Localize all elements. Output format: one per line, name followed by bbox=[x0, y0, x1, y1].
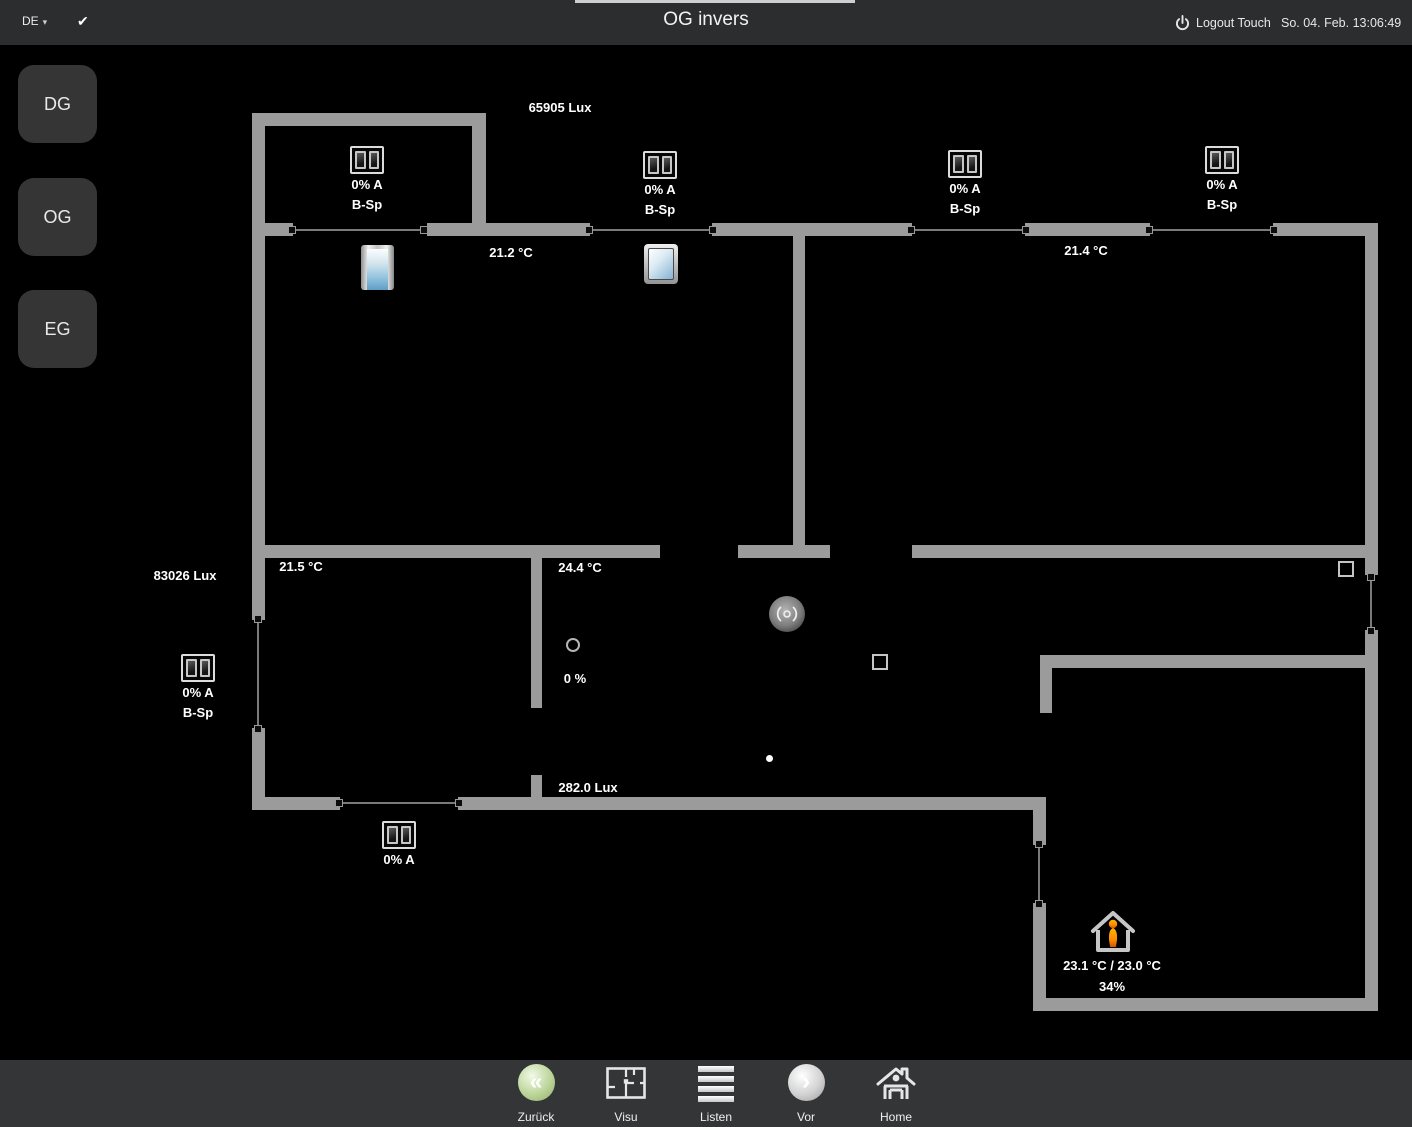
blind-control: 0% A B-Sp bbox=[1180, 146, 1264, 214]
toolbar-home-button[interactable]: Home bbox=[854, 1064, 938, 1124]
window-pane bbox=[387, 826, 398, 844]
valve-icon[interactable] bbox=[566, 638, 580, 652]
blind-window-icon[interactable] bbox=[382, 821, 416, 849]
lux-value-left: 83026 Lux bbox=[154, 568, 217, 583]
blind-mode-label: B-Sp bbox=[156, 704, 240, 722]
window-pane bbox=[355, 151, 366, 169]
wall bbox=[1040, 668, 1052, 713]
wall bbox=[1033, 903, 1046, 1005]
humidity-value: 34% bbox=[1099, 979, 1125, 994]
switch-icon[interactable] bbox=[1338, 561, 1354, 577]
door-icon[interactable] bbox=[361, 245, 394, 290]
toolbar-button-label: Zurück bbox=[518, 1110, 555, 1124]
wall bbox=[472, 113, 486, 230]
toolbar-visu-button[interactable]: Visu bbox=[584, 1064, 668, 1124]
window-opening bbox=[1370, 578, 1372, 630]
language-label: DE bbox=[22, 14, 39, 28]
wall bbox=[1025, 223, 1150, 236]
valve-value: 0 % bbox=[564, 671, 586, 686]
temperature-value: 21.4 °C bbox=[1064, 243, 1108, 258]
tilt-window-icon[interactable] bbox=[644, 244, 678, 284]
window-opening bbox=[590, 229, 712, 231]
blind-position-value: 0% A bbox=[618, 181, 702, 199]
sidebar-floor-og[interactable]: OG bbox=[18, 178, 97, 256]
lux-value-bottom: 282.0 Lux bbox=[558, 780, 617, 795]
sidebar-floor-dg[interactable]: DG bbox=[18, 65, 97, 143]
window-opening bbox=[257, 620, 259, 728]
wall bbox=[252, 797, 340, 810]
blind-position-value: 0% A bbox=[357, 851, 441, 869]
blind-mode-label: B-Sp bbox=[923, 200, 1007, 218]
window-pane bbox=[401, 826, 412, 844]
window-opening bbox=[912, 229, 1025, 231]
toolbar-button-label: Listen bbox=[700, 1110, 732, 1124]
chevron-down-icon: ▾ bbox=[43, 17, 48, 27]
blind-control: 0% A B-Sp bbox=[923, 150, 1007, 218]
wall bbox=[252, 545, 660, 558]
window-opening bbox=[293, 229, 423, 231]
wall bbox=[712, 223, 912, 236]
window-pane bbox=[967, 155, 978, 173]
switch-icon[interactable] bbox=[872, 654, 888, 670]
lamp-indicator[interactable] bbox=[766, 755, 773, 762]
room-climate-house-icon[interactable] bbox=[1090, 909, 1136, 958]
sidebar-floor-eg[interactable]: EG bbox=[18, 290, 97, 368]
blind-control: 0% A bbox=[357, 821, 441, 869]
wall bbox=[1040, 655, 1365, 668]
blind-mode-label: B-Sp bbox=[325, 196, 409, 214]
wall bbox=[252, 113, 486, 126]
blind-position-value: 0% A bbox=[325, 176, 409, 194]
blind-window-icon[interactable] bbox=[948, 150, 982, 178]
blind-position-value: 0% A bbox=[1180, 176, 1264, 194]
wall bbox=[1365, 223, 1378, 575]
blind-control: 0% A B-Sp bbox=[325, 146, 409, 214]
window-opening bbox=[1150, 229, 1273, 231]
wall bbox=[1033, 998, 1378, 1011]
toolbar-vor-button[interactable]: › Vor bbox=[764, 1064, 848, 1124]
blind-mode-label: B-Sp bbox=[618, 201, 702, 219]
back-icon: « bbox=[518, 1064, 555, 1101]
wall bbox=[738, 545, 830, 558]
floorplan-icon bbox=[606, 1067, 646, 1104]
lux-value-top: 65905 Lux bbox=[529, 100, 592, 115]
wall bbox=[427, 223, 590, 236]
home-icon bbox=[875, 1066, 917, 1107]
temperature-value: 21.5 °C bbox=[279, 559, 323, 574]
blind-window-icon[interactable] bbox=[643, 151, 677, 179]
window-pane bbox=[186, 659, 197, 677]
window-pane bbox=[1224, 151, 1235, 169]
blind-position-value: 0% A bbox=[923, 180, 1007, 198]
window-glass bbox=[648, 248, 674, 280]
list-icon bbox=[698, 1066, 734, 1106]
blind-window-icon[interactable] bbox=[1205, 146, 1239, 174]
blind-mode-label: B-Sp bbox=[1180, 196, 1264, 214]
window-pane bbox=[662, 156, 673, 174]
wall bbox=[1273, 223, 1378, 236]
climate-setpoint-value: 23.1 °C / 23.0 °C bbox=[1063, 958, 1161, 973]
blind-window-icon[interactable] bbox=[181, 654, 215, 682]
wall bbox=[1365, 630, 1378, 1010]
toolbar-button-label: Vor bbox=[797, 1110, 815, 1124]
toolbar-button-label: Visu bbox=[614, 1110, 637, 1124]
wall bbox=[793, 236, 805, 545]
window-opening bbox=[340, 802, 458, 804]
window-opening bbox=[1038, 845, 1040, 903]
blind-position-value: 0% A bbox=[156, 684, 240, 702]
window-pane bbox=[200, 659, 211, 677]
wall bbox=[531, 553, 542, 708]
temperature-value: 21.2 °C bbox=[489, 245, 533, 260]
top-scroll-indicator bbox=[575, 0, 855, 3]
power-icon[interactable] bbox=[1175, 15, 1190, 36]
blind-window-icon[interactable] bbox=[350, 146, 384, 174]
blind-control: 0% A B-Sp bbox=[156, 654, 240, 722]
window-pane bbox=[648, 156, 659, 174]
visu-app: { "topbar": { "language": "DE", "caret":… bbox=[0, 0, 1412, 1127]
check-icon[interactable]: ✔ bbox=[77, 13, 89, 30]
toolbar-zurueck-button[interactable]: « Zurück bbox=[494, 1064, 578, 1124]
blind-control: 0% A B-Sp bbox=[618, 151, 702, 219]
window-pane bbox=[1210, 151, 1221, 169]
clock-datetime: So. 04. Feb. 13:06:49 bbox=[1281, 16, 1401, 30]
forward-icon: › bbox=[788, 1064, 825, 1101]
temperature-value: 24.4 °C bbox=[558, 560, 602, 575]
top-bar: DE▾ ✔ OG invers Logout Touch So. 04. Feb… bbox=[0, 0, 1412, 45]
toolbar-button-label: Home bbox=[880, 1110, 912, 1124]
language-dropdown[interactable]: DE▾ bbox=[22, 14, 47, 28]
wall bbox=[458, 797, 1046, 810]
window-pane bbox=[953, 155, 964, 173]
logout-button[interactable]: Logout Touch bbox=[1196, 16, 1271, 30]
presence-sensor-icon[interactable] bbox=[768, 595, 806, 638]
wall bbox=[252, 113, 265, 620]
toolbar-listen-button[interactable]: Listen bbox=[674, 1064, 758, 1124]
wall bbox=[912, 545, 1365, 558]
window-pane bbox=[369, 151, 380, 169]
door-glass bbox=[367, 249, 388, 290]
page-title: OG invers bbox=[663, 9, 749, 31]
